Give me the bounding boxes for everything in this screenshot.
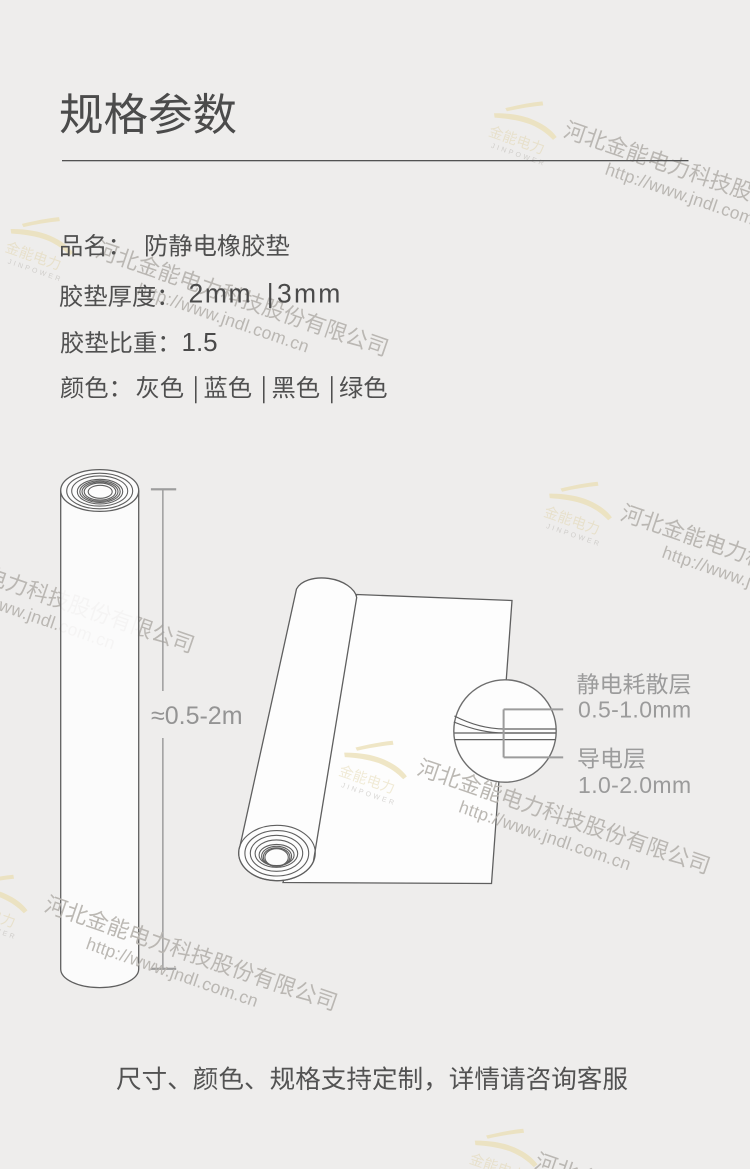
svg-text:2mm: 2mm: [189, 279, 253, 309]
svg-text:0.5-1.0mm: 0.5-1.0mm: [578, 697, 692, 723]
svg-text:|: |: [267, 279, 274, 309]
svg-text:≈0.5-2m: ≈0.5-2m: [151, 702, 243, 730]
svg-text:3mm: 3mm: [277, 279, 343, 309]
svg-text:1.0-2.0mm: 1.0-2.0mm: [578, 772, 692, 798]
svg-text:1.5: 1.5: [182, 327, 218, 357]
